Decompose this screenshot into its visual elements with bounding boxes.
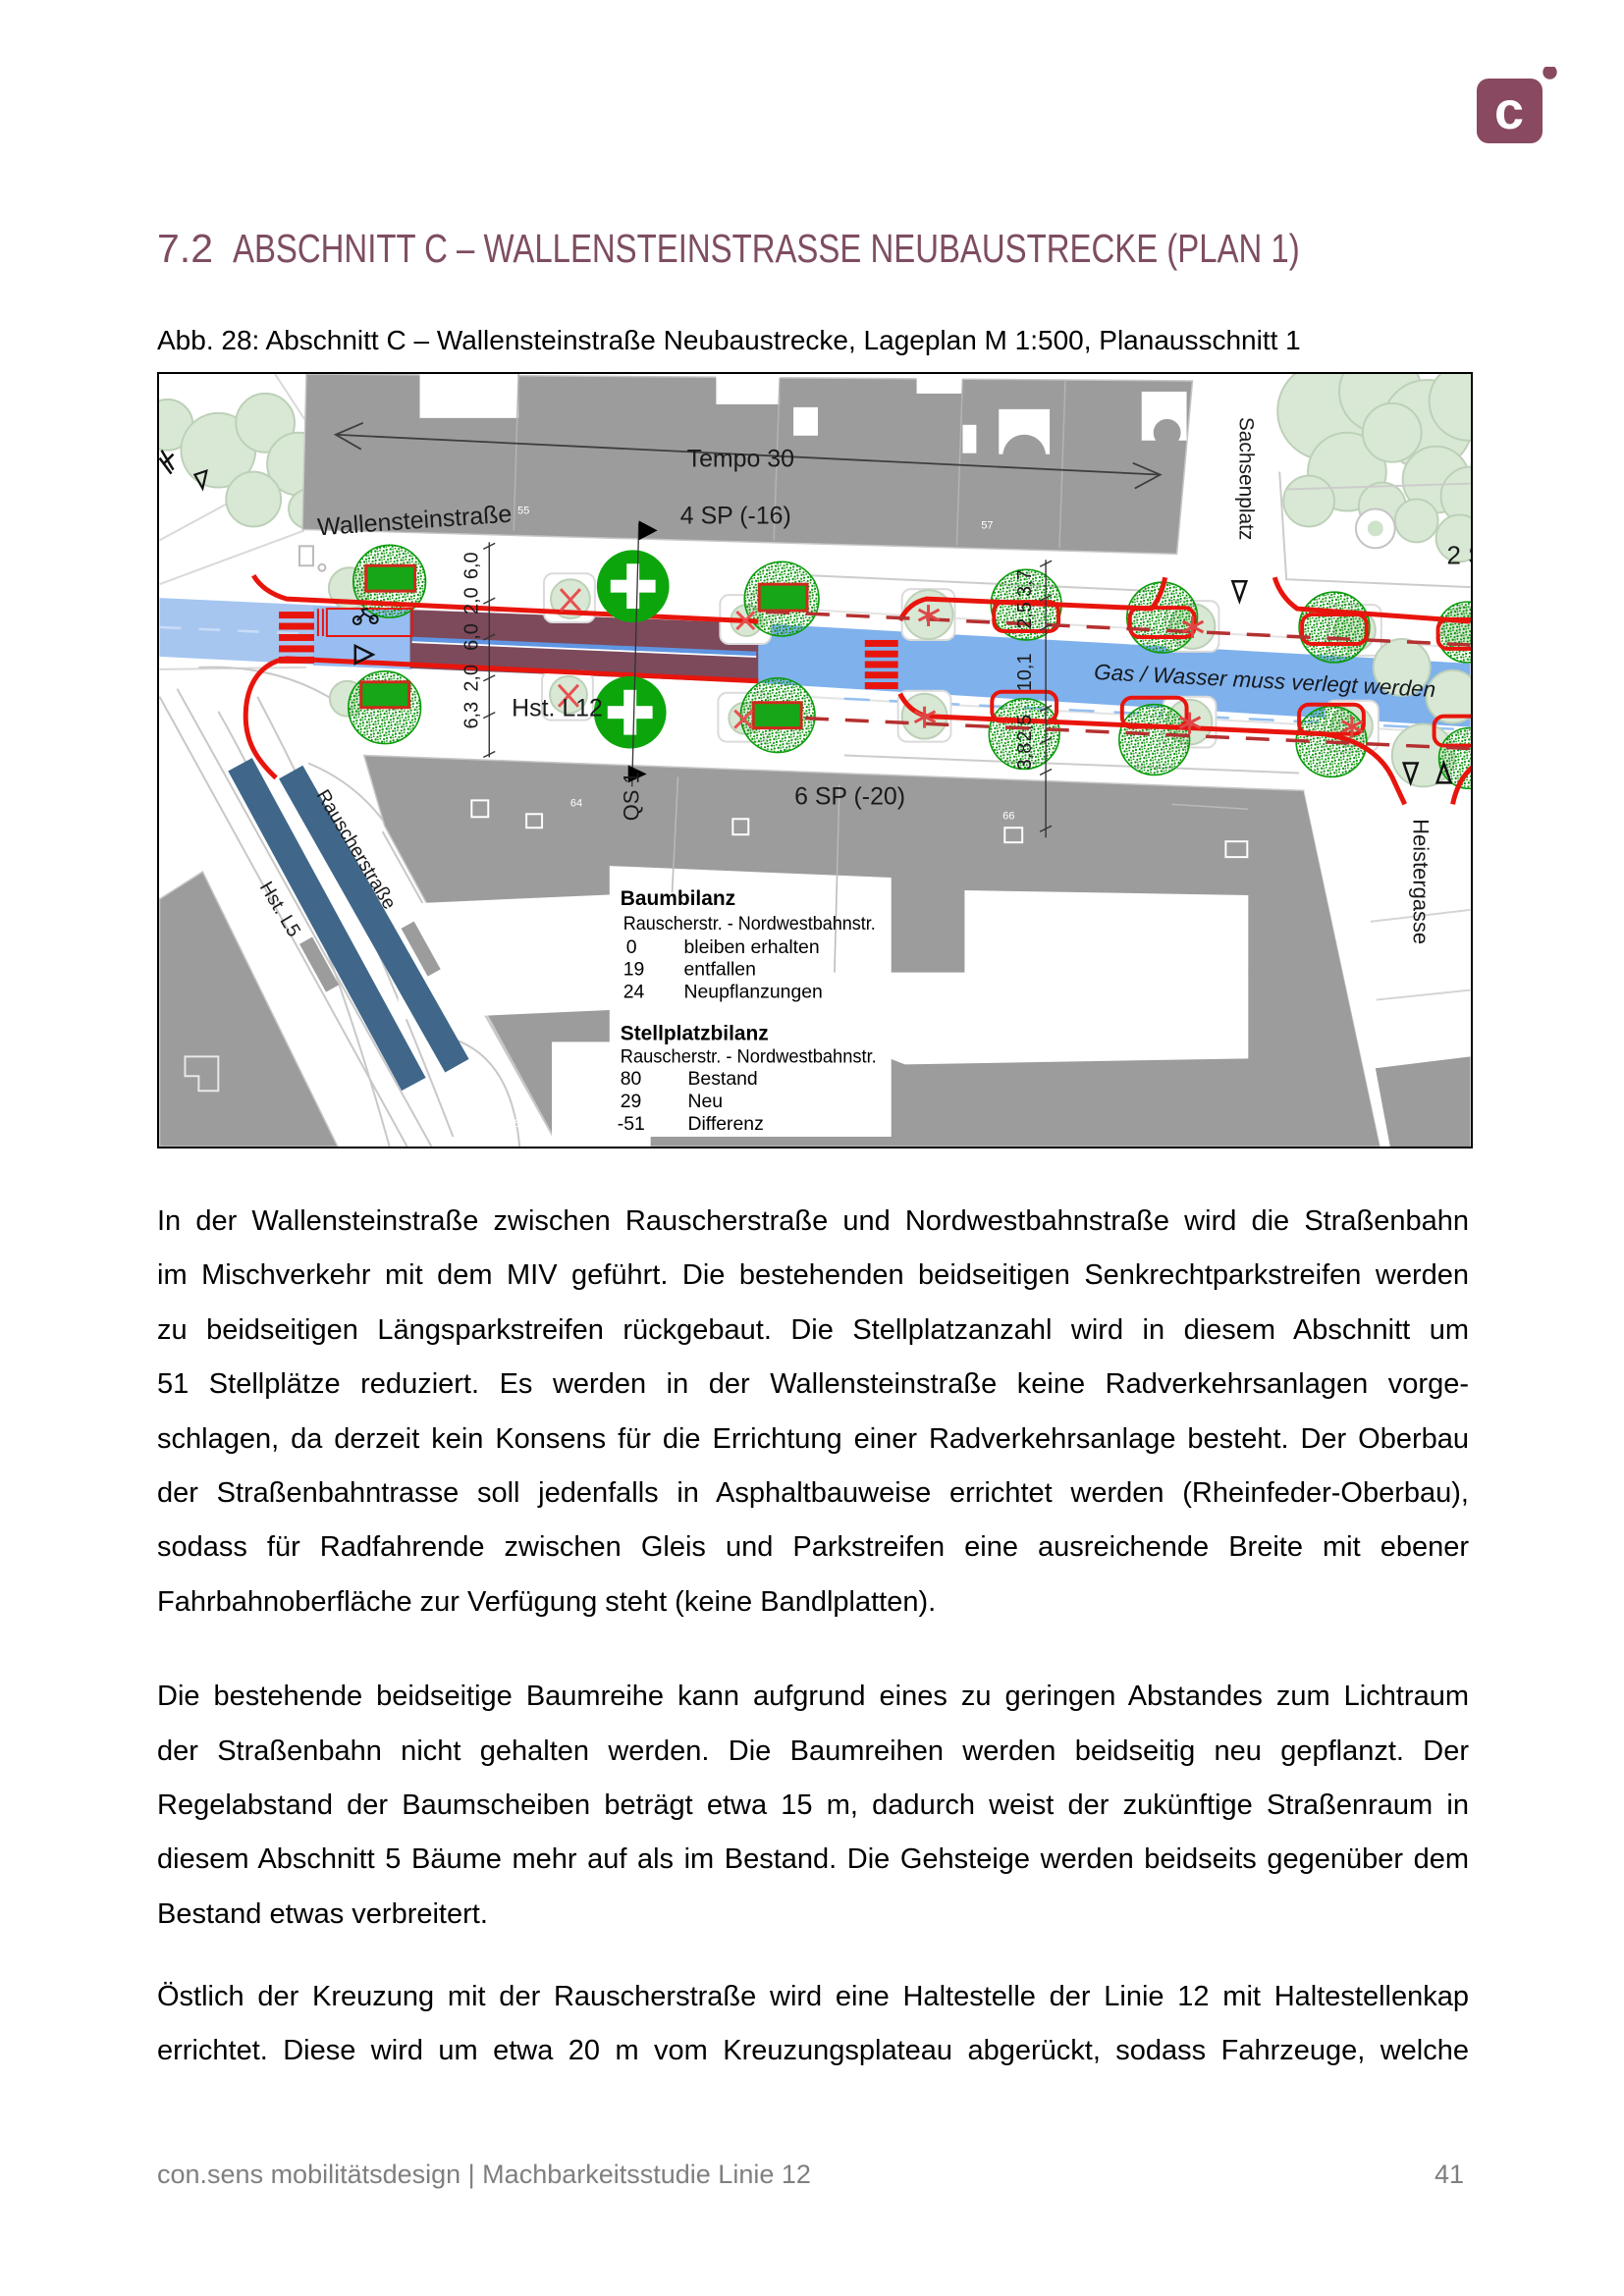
svg-text:2,5: 2,5: [1014, 602, 1036, 629]
svg-text:55: 55: [517, 505, 529, 516]
svg-text:QS 1: QS 1: [620, 772, 644, 821]
svg-text:2,5: 2,5: [1014, 715, 1036, 742]
svg-text:Neu: Neu: [687, 1091, 723, 1112]
svg-text:0: 0: [626, 936, 637, 958]
svg-text:c: c: [1494, 81, 1524, 140]
svg-text:Tempo 30: Tempo 30: [687, 446, 794, 473]
svg-text:6,0: 6,0: [460, 552, 482, 579]
svg-text:4 SP (-16): 4 SP (-16): [680, 502, 791, 529]
svg-text:31-35: 31-35: [492, 1118, 519, 1130]
svg-text:Baumbilanz: Baumbilanz: [621, 887, 735, 910]
svg-text:entfallen: entfallen: [684, 959, 756, 981]
svg-text:2 S: 2 S: [1447, 542, 1471, 569]
svg-text:2,0: 2,0: [460, 587, 482, 614]
svg-text:Differenz: Differenz: [687, 1113, 763, 1135]
svg-text:66: 66: [1002, 810, 1014, 822]
svg-text:60: 60: [797, 758, 809, 770]
svg-text:24: 24: [623, 982, 645, 1003]
svg-text:bleiben erhalten: bleiben erhalten: [684, 936, 820, 958]
svg-text:Sachsenplatz: Sachsenplatz: [1234, 417, 1257, 541]
svg-text:6,3: 6,3: [460, 702, 482, 729]
svg-text:Hst. L12: Hst. L12: [512, 695, 603, 722]
svg-text:64: 64: [570, 797, 582, 809]
svg-text:3,7: 3,7: [1014, 569, 1036, 597]
svg-text:57: 57: [981, 519, 993, 531]
svg-text:Heistergasse: Heistergasse: [1409, 819, 1434, 944]
svg-text:80: 80: [621, 1068, 642, 1090]
svg-text:19: 19: [623, 959, 645, 981]
svg-text:Rauscherstr. - Nordwestbahnstr: Rauscherstr. - Nordwestbahnstr.: [623, 913, 876, 934]
svg-text:Bestand: Bestand: [687, 1068, 757, 1090]
svg-text:Stellplatzbilanz: Stellplatzbilanz: [621, 1022, 769, 1044]
svg-text:59: 59: [1202, 523, 1214, 535]
svg-text:3,8: 3,8: [1014, 743, 1036, 771]
svg-text:6,0: 6,0: [460, 623, 482, 651]
svg-text:29: 29: [621, 1091, 642, 1112]
svg-text:2,0: 2,0: [460, 665, 482, 692]
svg-text:Rauscherstr. - Nordwestbahnstr: Rauscherstr. - Nordwestbahnstr.: [621, 1045, 877, 1067]
svg-text:Neupflanzungen: Neupflanzungen: [684, 982, 823, 1003]
svg-text:6 SP (-20): 6 SP (-20): [794, 782, 905, 810]
svg-text:-51: -51: [618, 1113, 645, 1135]
svg-text:10,1: 10,1: [1014, 653, 1036, 691]
